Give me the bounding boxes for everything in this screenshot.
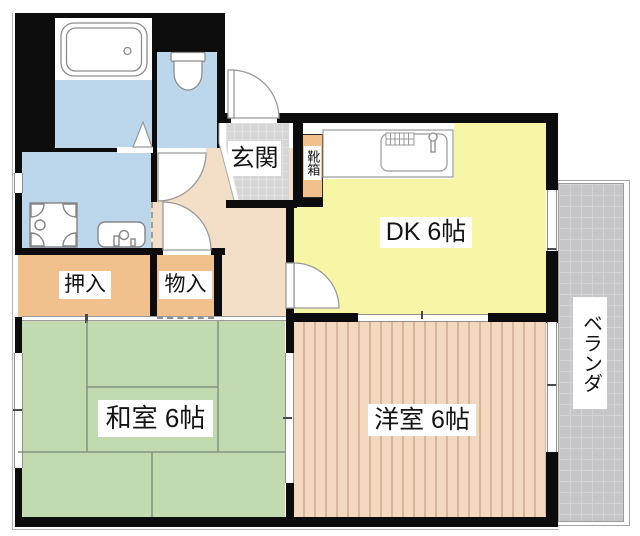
bathroom-floor xyxy=(55,80,152,148)
wall-closets-top xyxy=(15,248,163,255)
wall-washitsu-left-upper xyxy=(15,317,22,353)
tick-washitsu-opening xyxy=(85,314,88,323)
wall-washitsu-left-lower xyxy=(15,468,22,518)
toilet-room-floor xyxy=(157,52,217,148)
label-western-room: 洋室 6帖 xyxy=(368,404,476,436)
wall-monoire-top-right xyxy=(211,248,225,255)
tick-window-western xyxy=(547,384,556,386)
wall-rooms-divider-lower xyxy=(286,483,294,519)
wall-dk-right-lower xyxy=(546,251,558,323)
tick-window-washitsu xyxy=(13,409,22,411)
label-entrance: 玄関 xyxy=(228,141,281,176)
label-monoire: 物入 xyxy=(159,271,212,299)
opening-washitsu-top xyxy=(22,316,286,321)
wall-western-top-left xyxy=(288,313,358,322)
washroom-floor xyxy=(22,152,151,248)
kitchen-counter-area xyxy=(322,122,454,179)
monoire-door-gap xyxy=(163,248,211,255)
dashed-washroom-door xyxy=(151,202,153,248)
wall-dk-right-upper xyxy=(546,113,558,190)
wall-hall-dk-upper xyxy=(286,207,294,265)
window-washroom-left xyxy=(14,173,23,193)
tick-slider-rooms xyxy=(283,417,292,419)
toilet-door-gap xyxy=(158,148,206,153)
entrance-door-arc xyxy=(231,70,279,118)
wall-entrance-left xyxy=(217,113,231,123)
slider-dk-western xyxy=(358,314,488,322)
wall-washroom-hall xyxy=(151,148,157,202)
label-shoe-box: 靴箱 xyxy=(304,146,321,180)
wall-monoire-right xyxy=(214,255,222,320)
label-oshiire: 押入 xyxy=(59,271,111,299)
wall-dk-top xyxy=(300,113,558,123)
outer-outline-left xyxy=(12,13,13,530)
wall-western-right-lower xyxy=(546,452,558,527)
tick-window-dk xyxy=(547,248,556,250)
floorplan-canvas: 玄関 靴箱 DK 6帖 押入 物入 和室 6帖 洋室 6帖 ベランダ xyxy=(0,0,640,536)
entrance-door-leaf xyxy=(228,70,234,118)
window-western-veranda xyxy=(547,322,557,452)
label-dk: DK 6帖 xyxy=(380,217,472,248)
wall-under-shoebox xyxy=(293,198,323,207)
tick-slider-dk xyxy=(421,311,423,319)
wall-genkan-shoebox xyxy=(293,113,303,207)
label-japanese-room: 和室 6帖 xyxy=(98,400,213,437)
window-dk-veranda xyxy=(547,190,557,251)
wall-washroom-left xyxy=(15,152,22,248)
label-veranda: ベランダ xyxy=(573,297,607,409)
bath-door-gap xyxy=(117,147,153,153)
dashed-monoire-opening xyxy=(157,317,214,319)
bathtub-room-floor xyxy=(55,18,152,80)
wall-closet-divider xyxy=(150,248,157,318)
outer-outline-bottom xyxy=(12,529,559,530)
